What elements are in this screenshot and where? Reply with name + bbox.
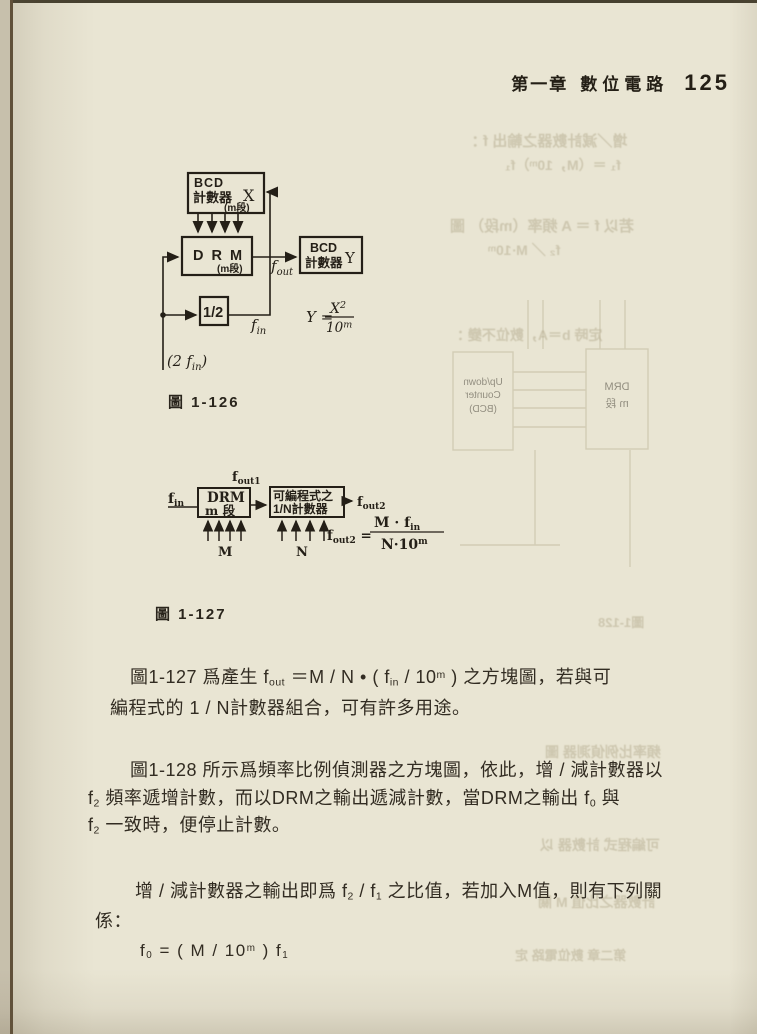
figure-1-126-diagram: BCD 計數器 X (m段) D R M (m段) BCD 計數器 Y 1/2 … (140, 165, 470, 415)
bleedthrough-text: 定時 b＝A，數位不變 ： (450, 325, 602, 345)
scanned-book-page: 增／減計數器之輸出 f ： f₁ ＝（M，10ᵐ）f₁ 若以 f ＝ A 頻率（… (0, 0, 757, 1034)
y-formula-numerator: X2 (329, 300, 346, 317)
bleedthrough-box-label: m 段 (605, 396, 628, 410)
bcd-y-var: Y (344, 249, 356, 267)
bleedthrough-text: 可編程式 計數器 以 (540, 835, 660, 855)
fout-label: fout (270, 257, 294, 278)
paragraph-2-line-2: f2 頻率遞增計數，而以DRM之輸出遞減計數，當DRM之輸出 f0 與 (88, 788, 620, 810)
fin-label: fin (168, 491, 184, 509)
page-number: 125 (684, 70, 730, 96)
figure-1-127-diagram: fin DRM m 段 fout1 可編程式之 1/N計數器 fout2 M N… (160, 463, 460, 563)
bcd-x-label-line1: BCD (194, 176, 224, 190)
fout1-label: fout1 (232, 470, 261, 487)
wire-junction-dot (160, 312, 166, 318)
chapter-title: 數位電路 (580, 70, 668, 95)
paragraph-3-line-2: 係： (95, 911, 132, 932)
drm-label-line2: m 段 (205, 503, 236, 518)
paragraph-1-line-2: 編程式的 1 / N計數器組合，可有許多用途。 (110, 698, 471, 719)
chapter-label: 第一章 (511, 70, 568, 95)
fin-label: fin (250, 316, 266, 337)
drm-stage: (m段) (217, 262, 243, 275)
bleedthrough-text: 圖1-128 (598, 612, 644, 631)
fout2-label: fout2 (357, 495, 386, 512)
bcd-y-label-line2: 計數器 (305, 255, 343, 270)
prog-counter-label-line2: 1/N計數器 (273, 501, 329, 516)
figure-1-126-wires (163, 192, 296, 370)
prog-counter-label-line1: 可編程式之 (273, 488, 333, 503)
bleedthrough-box-label: DRM (604, 381, 629, 393)
bleedthrough-text: 增／減計數器之輸出 f ： (464, 130, 627, 151)
page-header: 第一章 數位電路 125 (511, 70, 730, 96)
bleedthrough-text: f₁ ＝（M，10ᵐ）f₁ (505, 155, 621, 175)
bcd-y-label-line1: BCD (310, 241, 337, 255)
page-spine-line (10, 0, 13, 1034)
paragraph-2-line-1: 圖1-128 所示爲頻率比例偵測器之方塊圖，依此，增 / 減計數器以 (130, 760, 663, 781)
bleedthrough-box-label: (BCD) (469, 404, 497, 415)
paragraph-3-formula: f0 = ( M / 10m ) f1 (140, 941, 289, 961)
bleedthrough-text: f₂ ／ M·10ᵐ (488, 240, 560, 260)
scan-edge-top (0, 0, 757, 3)
scan-edge-left (0, 0, 10, 1034)
bleedthrough-text: 第二章 數位電路 定 (515, 945, 626, 964)
n-input-label: N (296, 545, 308, 560)
fout2-formula-numerator: M · fin (374, 515, 421, 533)
input-2fin-label: (2 fin) (167, 354, 207, 373)
paragraph-1-line-1: 圖1-127 爲產生 fout ＝M / N • ( fin / 10m ) 之… (130, 667, 611, 689)
fout2-formula-denominator: N·10m (381, 537, 428, 553)
y-formula-denominator: 10m (326, 320, 352, 337)
bleedthrough-text: 頻率比例偵測器 圖 (545, 742, 661, 762)
bleedthrough-diagram: Up/down Counter (BCD) DRM m 段 (440, 295, 670, 580)
bcd-x-stage: (m段) (224, 201, 250, 214)
fout2-formula-lhs: fout2 = (327, 528, 372, 546)
m-input-label: M (218, 545, 232, 560)
half-divider-label: 1/2 (203, 305, 223, 321)
figure-1-126-caption: 圖 1-126 (168, 391, 240, 412)
paragraph-3-line-1: 增 / 減計數器之輸出即爲 f2 / f1 之比值，若加入M值，則有下列關 (135, 881, 662, 903)
bleedthrough-text: 若以 f ＝ A 頻率（m段） 圖 (450, 215, 634, 236)
paragraph-2-line-3: f2 一致時，便停止計數。 (88, 815, 290, 837)
figure-1-127-caption: 圖 1-127 (155, 603, 227, 624)
drm-label: D R M (193, 248, 244, 264)
